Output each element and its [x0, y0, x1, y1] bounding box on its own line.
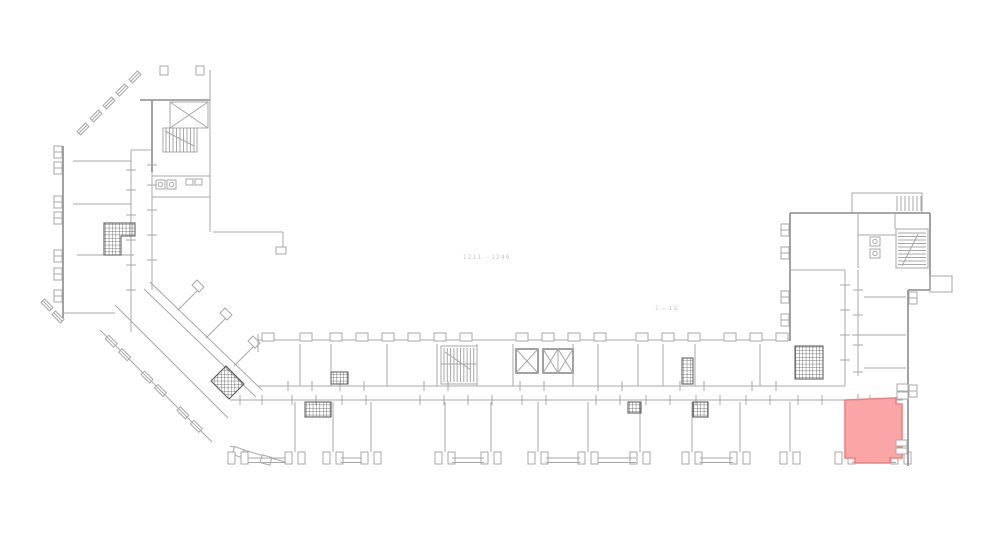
- service-shaft-east: [795, 346, 823, 379]
- stair-core-northwest: [140, 66, 210, 232]
- elevator-shaft-northwest: [170, 102, 208, 128]
- floor-plan-canvas: 1211 - 1246 1 - 12: [0, 0, 1000, 535]
- roof-access: [852, 193, 922, 213]
- staircase-northeast: [896, 229, 928, 268]
- west-windows: [54, 146, 62, 302]
- diagonal-windows: [41, 299, 202, 432]
- floor-plan: 1211 - 1246 1 - 12: [0, 0, 1000, 535]
- service-shaft: [693, 402, 708, 417]
- service-shaft-diagonal: [211, 366, 244, 399]
- washroom-northeast: [870, 237, 880, 258]
- east-balcony: [930, 276, 952, 292]
- right-wing: [781, 193, 952, 466]
- pier: [160, 66, 168, 75]
- service-shaft-west: [104, 223, 135, 255]
- northwest-diagonal-windows: [77, 71, 141, 135]
- east-corridor-ticks: [840, 285, 863, 372]
- range-label-east: 1 - 12: [655, 305, 678, 312]
- room-partitions-south: [295, 402, 790, 452]
- service-shaft: [331, 372, 348, 384]
- service-shaft: [628, 402, 641, 413]
- staircase-northwest: [163, 128, 197, 152]
- staircase-central: [441, 346, 477, 384]
- diagonal-wing: [41, 280, 292, 465]
- service-shaft: [682, 358, 693, 384]
- highlighted-room[interactable]: [845, 398, 902, 463]
- diagonal-corridor-wall: [150, 282, 262, 390]
- elevator-bank-central: [516, 349, 573, 373]
- pier: [276, 247, 286, 254]
- corridor-door-ticks: [240, 381, 870, 405]
- left-wing: [54, 66, 286, 332]
- washroom-northwest: [152, 176, 210, 197]
- service-shaft: [305, 402, 331, 417]
- stair-treads: [897, 196, 921, 211]
- pier: [196, 66, 204, 75]
- range-label-west: 1211 - 1246: [463, 254, 511, 261]
- stair-treads: [166, 128, 194, 152]
- south-facade: [228, 452, 911, 464]
- diagonal-partitions: [178, 280, 260, 366]
